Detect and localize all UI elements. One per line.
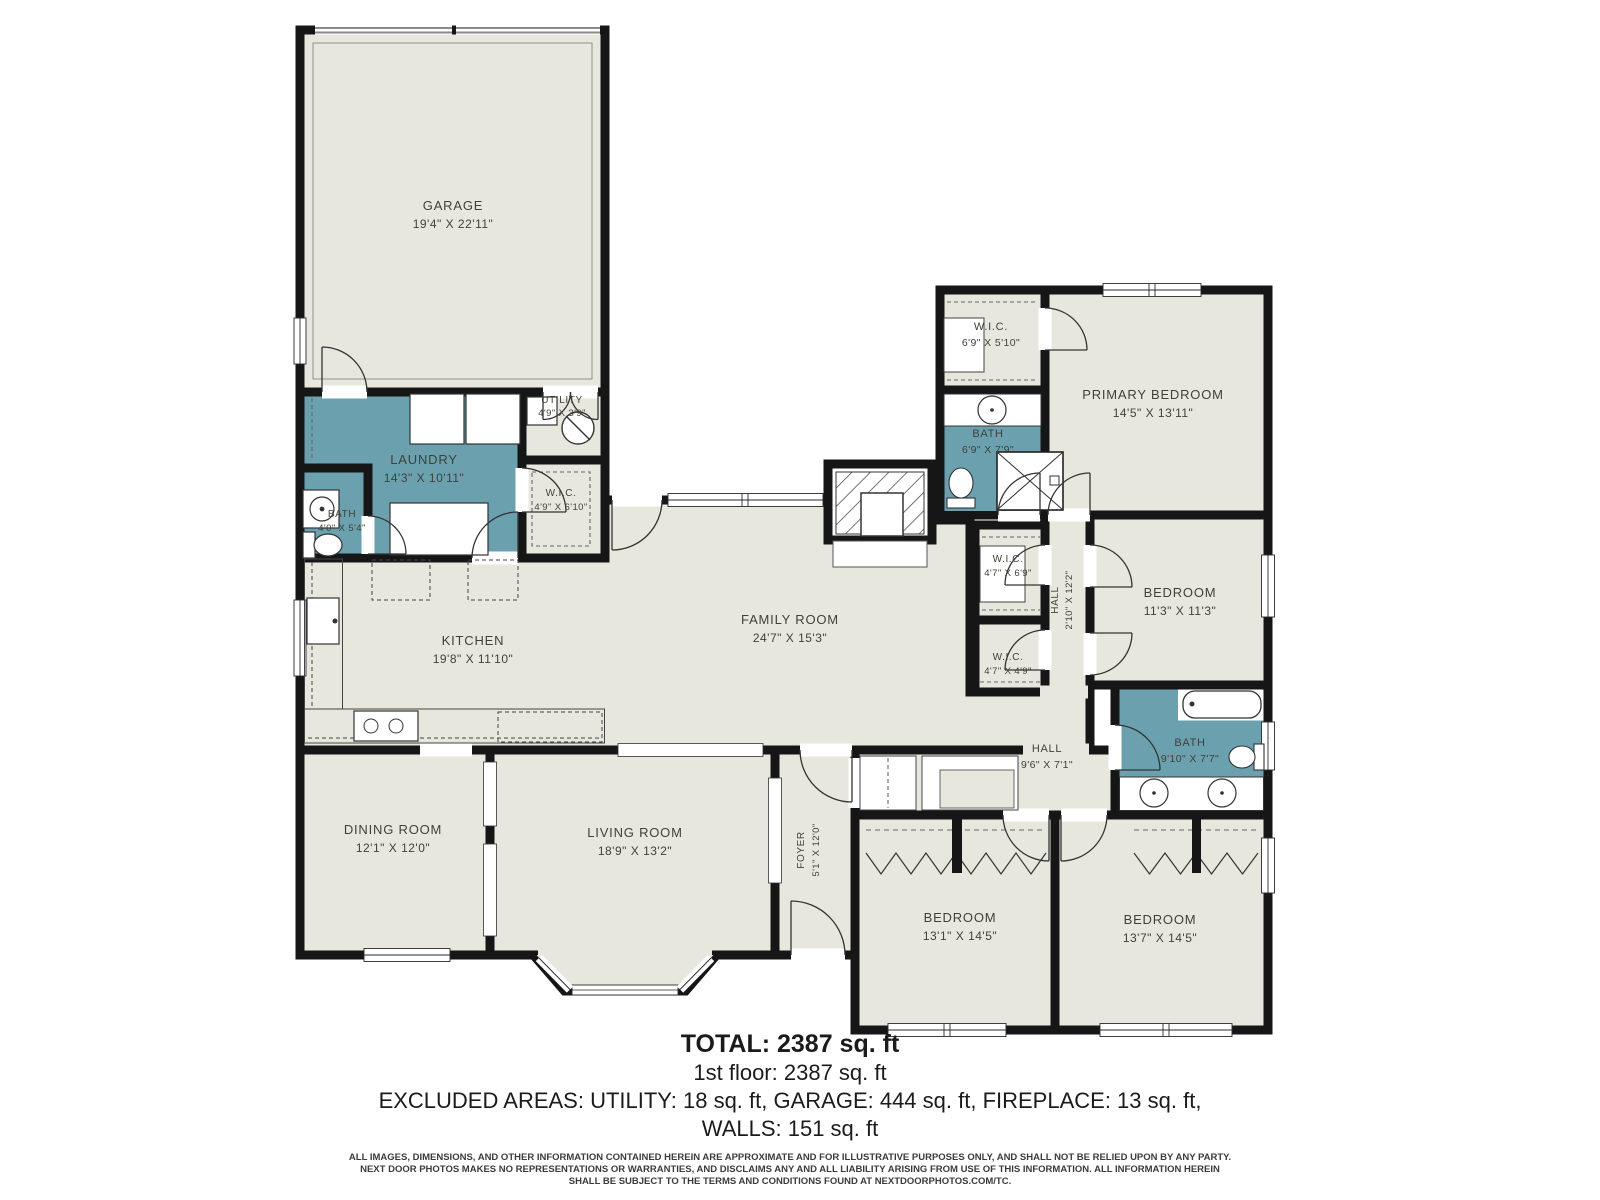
- label-wic-hall-lower-dims: 4'7" X 4'9": [984, 666, 1032, 677]
- label-foyer-name: FOYER: [796, 831, 807, 868]
- room-bedroom-ne: [1090, 515, 1268, 685]
- label-bedroom-sw-name: BEDROOM: [924, 910, 997, 925]
- label-laundry-name: LAUNDRY: [390, 452, 458, 467]
- label-bedroom-se-dims: 13'7" X 14'5": [1123, 931, 1197, 945]
- label-wic-primary-dims: 6'9" X 5'10": [962, 337, 1020, 349]
- label-hall-upper-dims: 2'10" X 12'2": [1064, 571, 1075, 630]
- disclaimer-line-1: ALL IMAGES, DIMENSIONS, AND OTHER INFORM…: [349, 1152, 1231, 1163]
- label-utility-dims: 4'9" X 3'9": [538, 408, 586, 419]
- label-bath-laundry-dims: 4'0" X 5'4": [318, 523, 366, 534]
- label-foyer-dims: 5'1" X 12'0": [811, 823, 822, 876]
- label-bath-hall-name: BATH: [1174, 737, 1205, 749]
- label-kitchen-name: KITCHEN: [442, 633, 505, 648]
- floor-plan-page: GARAGE 19'4" X 22'11" UTILITY 4'9" X 3'9…: [0, 0, 1600, 1200]
- label-wic-laundry-dims: 4'9" X 6'10": [534, 502, 587, 513]
- floor-plan-svg: GARAGE 19'4" X 22'11" UTILITY 4'9" X 3'9…: [0, 0, 1600, 1200]
- label-bath-hall-dims: 9'10" X 7'7": [1161, 753, 1219, 765]
- label-kitchen-dims: 19'8" X 11'10": [433, 652, 514, 666]
- summary-walls: WALLS: 151 sq. ft: [702, 1116, 879, 1141]
- disclaimer-line-2: NEXT DOOR PHOTOS MAKES NO REPRESENTATION…: [360, 1164, 1220, 1175]
- bathtub-icon: [1183, 691, 1261, 718]
- label-bath-primary-dims: 6'9" X 7'9": [962, 444, 1014, 456]
- label-hall-lower-name: HALL: [1032, 743, 1062, 755]
- label-bath-primary-name: BATH: [972, 428, 1003, 440]
- label-bedroom-se-name: BEDROOM: [1124, 912, 1197, 927]
- label-wic-primary-name: W.I.C.: [974, 321, 1008, 333]
- label-hall-upper-name: HALL: [1050, 586, 1061, 613]
- label-garage-name: GARAGE: [423, 198, 483, 213]
- label-dining-dims: 12'1" X 12'0": [356, 841, 430, 855]
- label-family-room-dims: 24'7" X 15'3": [753, 631, 827, 645]
- label-wic-hall-upper-dims: 4'7" X 6'9": [984, 568, 1032, 579]
- label-wic-hall-upper-name: W.I.C.: [993, 554, 1024, 565]
- area-summary: TOTAL: 2387 sq. ft 1st floor: 2387 sq. f…: [379, 1030, 1202, 1141]
- summary-excluded: EXCLUDED AREAS: UTILITY: 18 sq. ft, GARA…: [379, 1088, 1202, 1113]
- label-utility-name: UTILITY: [541, 395, 582, 406]
- fireplace: [828, 464, 932, 567]
- label-garage-dims: 19'4" X 22'11": [413, 217, 494, 231]
- label-dining-name: DINING ROOM: [344, 822, 442, 837]
- label-family-room-name: FAMILY ROOM: [741, 612, 839, 627]
- label-living-name: LIVING ROOM: [587, 825, 682, 840]
- label-bedroom-sw-dims: 13'1" X 14'5": [923, 929, 997, 943]
- label-primary-bedroom-name: PRIMARY BEDROOM: [1082, 387, 1224, 402]
- summary-floor: 1st floor: 2387 sq. ft: [693, 1060, 886, 1085]
- label-wic-laundry-name: W.I.C.: [546, 488, 577, 499]
- summary-total: TOTAL: 2387 sq. ft: [681, 1030, 900, 1058]
- label-bedroom-ne-name: BEDROOM: [1144, 585, 1217, 600]
- disclaimer-line-3: SHALL BE SUBJECT TO THE TERMS AND CONDIT…: [569, 1176, 1011, 1187]
- bay-window: [532, 946, 718, 995]
- label-wic-hall-lower-name: W.I.C.: [993, 652, 1024, 663]
- label-laundry-dims: 14'3" X 10'11": [384, 471, 465, 485]
- label-bedroom-ne-dims: 11'3" X 11'3": [1144, 604, 1217, 618]
- label-living-dims: 18'9" X 13'2": [598, 844, 672, 858]
- label-hall-lower-dims: 9'6" X 7'1": [1021, 759, 1073, 771]
- label-bath-laundry-name: BATH: [328, 509, 356, 520]
- disclaimer: ALL IMAGES, DIMENSIONS, AND OTHER INFORM…: [349, 1152, 1231, 1187]
- label-primary-bedroom-dims: 14'5" X 13'11": [1113, 406, 1194, 420]
